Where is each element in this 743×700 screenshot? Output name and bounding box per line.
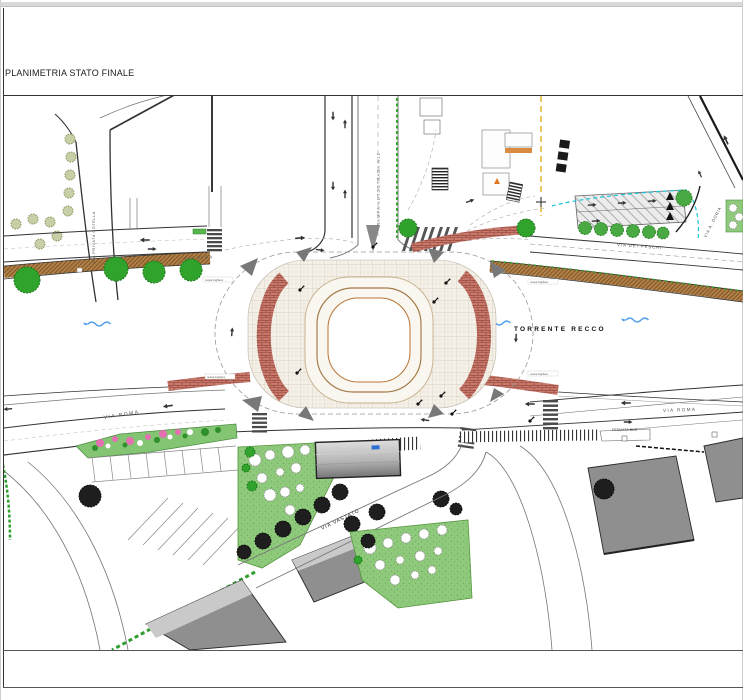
railing-note: nuova ringhiera: [530, 280, 548, 284]
label-via-dei-peschi: VIA DEI PESCHI: [617, 242, 663, 250]
parking-lot-southwest: [88, 446, 243, 565]
label-fermata-bus: FERMATA BUS: [612, 428, 637, 432]
building-dark-large: [588, 456, 694, 554]
railing-note: nuova ringhiera: [207, 375, 225, 379]
label-via-a-doria: VIA A. DORIA: [702, 206, 722, 239]
tree-row-olive: [11, 134, 76, 249]
page: { "window": { "title_label": "PLANIMETRI…: [0, 0, 743, 700]
dark-tree: [79, 485, 101, 507]
river-promenade-left: [4, 252, 210, 293]
label-via-roma-east: VIA ROMA: [663, 407, 697, 413]
label-torrente-recco: TORRENTE RECCO: [514, 326, 606, 333]
southeast-block: [486, 438, 743, 650]
roundabout-plaza: [215, 243, 533, 423]
crosswalk-south-left: [252, 413, 267, 433]
embankment-wall-right: [460, 435, 600, 437]
railing-note: nuova ringhiera: [205, 278, 223, 282]
upper-right-buildings: [455, 96, 570, 238]
building-dark-right: [704, 438, 743, 502]
site-plan-drawing: VIA PRIVATA COTELLA RAMPA AUTOSTRADA A12…: [0, 0, 743, 700]
flower-bed: [76, 424, 237, 458]
label-via-privata-cotella: VIA PRIVATA COTELLA: [92, 211, 96, 263]
building-southwest: [146, 580, 286, 650]
label-rampa-autostrada: RAMPA AUTOSTRADA A12: [376, 152, 381, 226]
crosswalk-north-left: [207, 229, 222, 251]
street-via-a-doria: [676, 96, 743, 232]
garden-southeast: [350, 520, 472, 608]
moto-parking-glyphs: [556, 139, 570, 172]
label-via-roma-west: VIA ROMA: [103, 409, 140, 421]
railing-note: nuova ringhiera: [530, 372, 548, 376]
underpass-ramp: [315, 440, 400, 479]
